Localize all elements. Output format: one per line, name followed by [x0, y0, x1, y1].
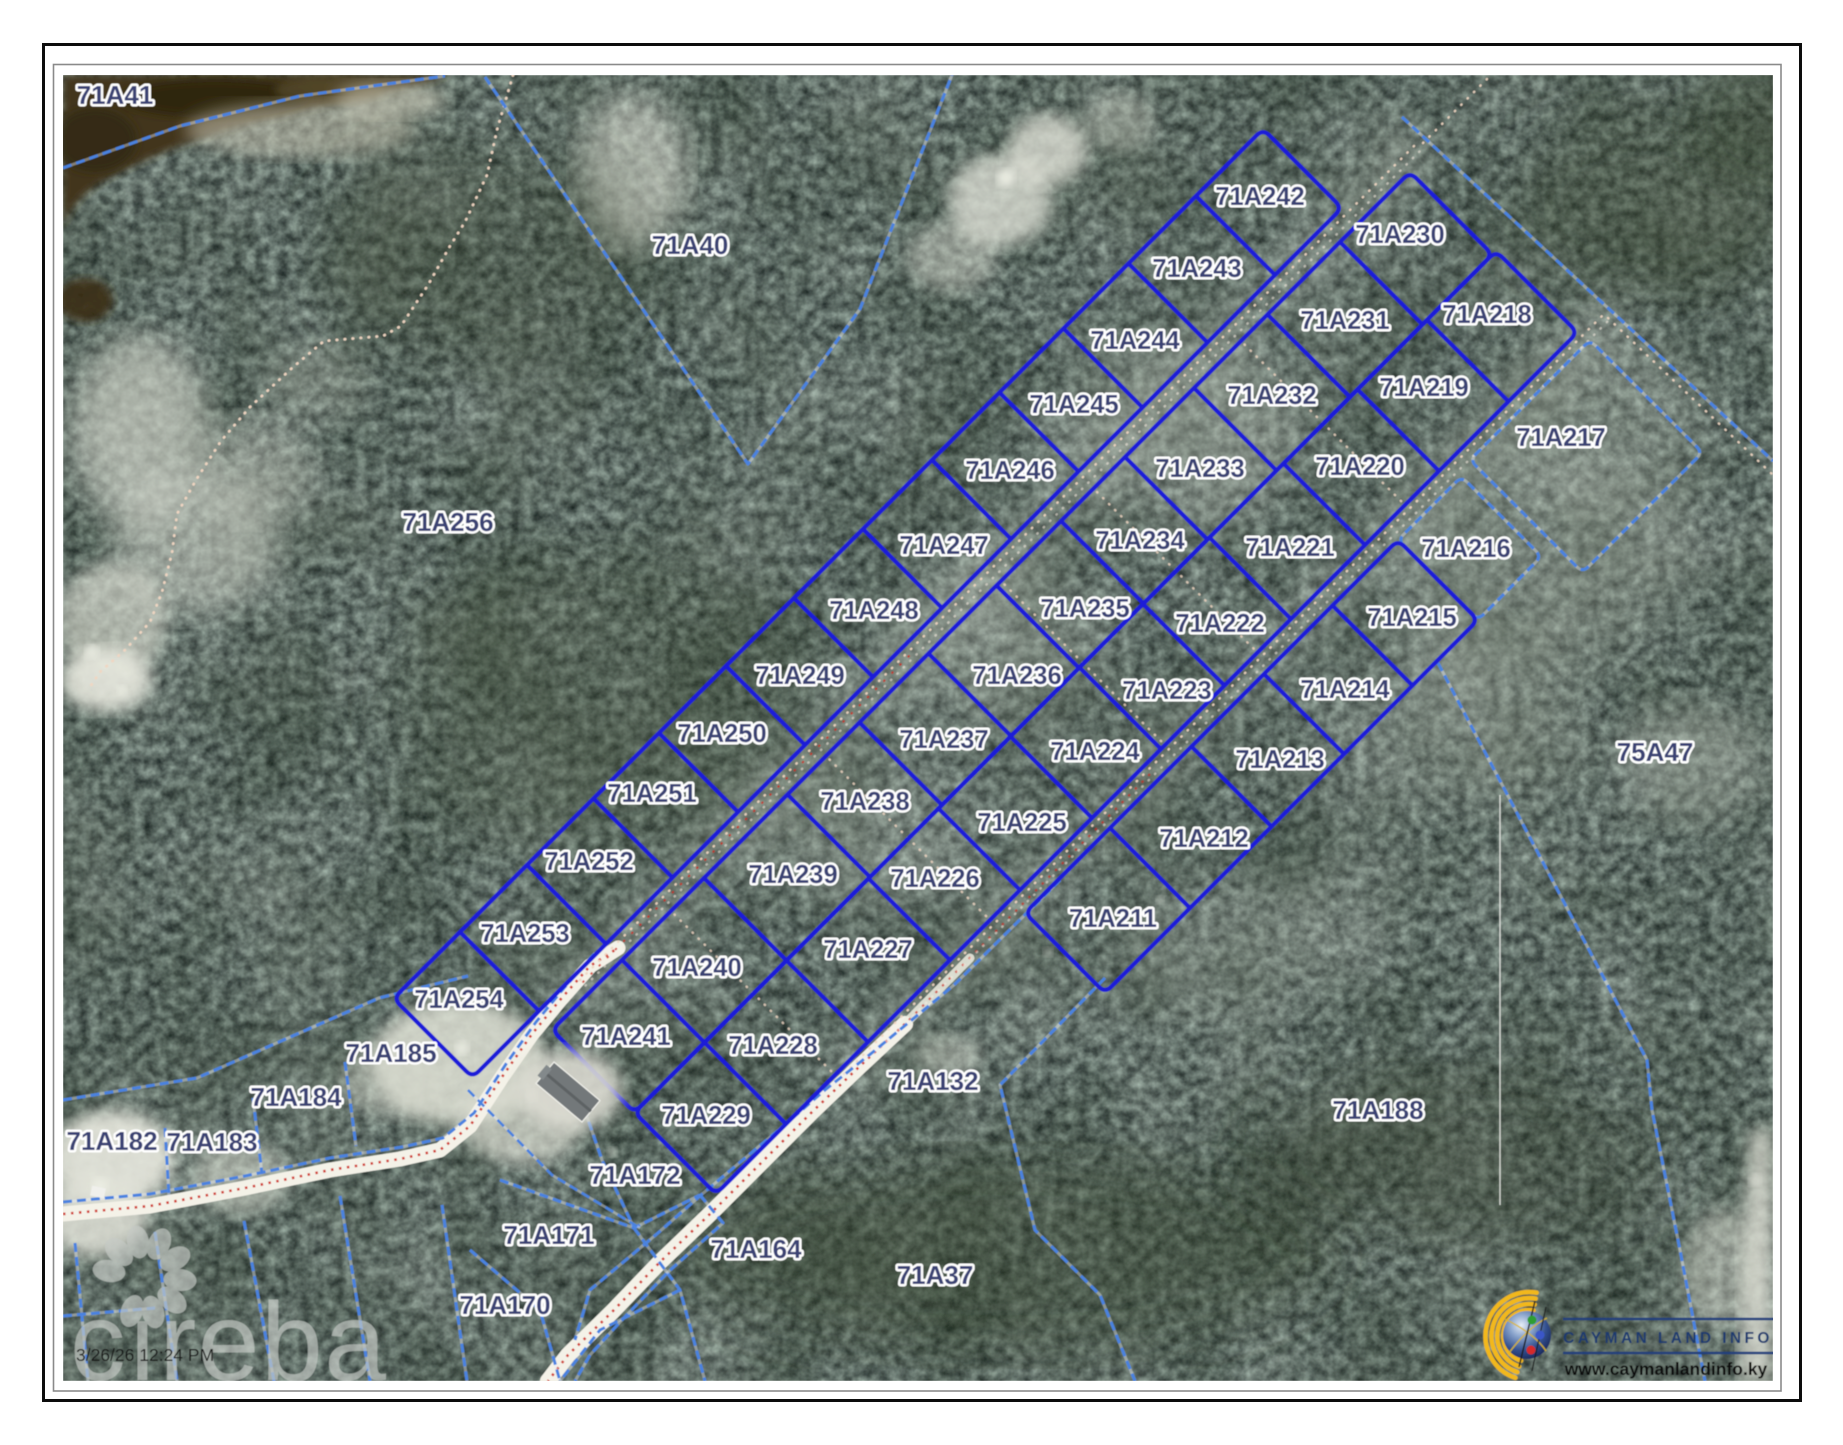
- svg-text:71A229: 71A229: [661, 1102, 750, 1130]
- svg-text:71A216: 71A216: [1421, 535, 1510, 563]
- svg-text:71A236: 71A236: [972, 662, 1061, 690]
- svg-text:71A214: 71A214: [1300, 676, 1390, 704]
- svg-text:71A231: 71A231: [1300, 307, 1389, 335]
- svg-text:71A184: 71A184: [250, 1082, 342, 1112]
- svg-text:71A232: 71A232: [1227, 382, 1316, 410]
- svg-text:71A246: 71A246: [965, 457, 1054, 485]
- svg-text:3/26/26 12:24 PM: 3/26/26 12:24 PM: [76, 1345, 214, 1365]
- svg-text:71A171: 71A171: [503, 1220, 594, 1250]
- svg-text:71A213: 71A213: [1235, 746, 1324, 774]
- svg-text:71A243: 71A243: [1152, 255, 1241, 283]
- svg-text:71A226: 71A226: [890, 865, 979, 893]
- svg-text:71A222: 71A222: [1175, 610, 1264, 638]
- svg-text:71A172: 71A172: [589, 1160, 680, 1190]
- svg-text:71A230: 71A230: [1355, 221, 1444, 249]
- svg-text:71A252: 71A252: [544, 848, 633, 876]
- svg-text:71A182: 71A182: [66, 1126, 157, 1156]
- svg-text:71A239: 71A239: [748, 861, 837, 889]
- svg-text:71A220: 71A220: [1315, 453, 1404, 481]
- svg-text:71A237: 71A237: [899, 726, 988, 754]
- svg-text:71A41: 71A41: [77, 80, 154, 110]
- svg-text:71A240: 71A240: [652, 954, 741, 982]
- svg-text:71A225: 71A225: [977, 809, 1066, 837]
- svg-text:71A256: 71A256: [402, 507, 493, 537]
- svg-text:71A170: 71A170: [459, 1290, 550, 1320]
- svg-text:71A37: 71A37: [897, 1260, 974, 1290]
- svg-text:71A254: 71A254: [414, 986, 504, 1014]
- svg-text:71A228: 71A228: [728, 1032, 817, 1060]
- svg-text:71A241: 71A241: [581, 1023, 670, 1051]
- svg-text:71A219: 71A219: [1379, 374, 1468, 402]
- svg-text:www.caymanlandinfo.ky: www.caymanlandinfo.ky: [1564, 1359, 1768, 1379]
- svg-text:71A251: 71A251: [607, 780, 696, 808]
- svg-text:71A132: 71A132: [887, 1066, 978, 1096]
- svg-text:71A211: 71A211: [1069, 905, 1157, 933]
- svg-text:71A40: 71A40: [652, 230, 729, 260]
- svg-text:71A221: 71A221: [1245, 534, 1334, 562]
- svg-text:71A215: 71A215: [1367, 604, 1456, 632]
- svg-text:75A47: 75A47: [1617, 737, 1694, 767]
- svg-text:71A185: 71A185: [345, 1038, 436, 1068]
- svg-text:71A234: 71A234: [1095, 527, 1185, 555]
- svg-text:71A217: 71A217: [1516, 424, 1605, 452]
- svg-text:71A238: 71A238: [820, 788, 909, 816]
- svg-text:71A249: 71A249: [755, 662, 844, 690]
- svg-text:71A245: 71A245: [1029, 391, 1118, 419]
- svg-text:71A233: 71A233: [1155, 455, 1244, 483]
- svg-text:71A253: 71A253: [480, 920, 569, 948]
- svg-text:71A164: 71A164: [710, 1234, 802, 1264]
- svg-text:71A244: 71A244: [1090, 327, 1180, 355]
- svg-text:71A250: 71A250: [677, 720, 766, 748]
- svg-text:71A183: 71A183: [166, 1127, 257, 1157]
- svg-text:71A242: 71A242: [1215, 183, 1304, 211]
- svg-text:71A218: 71A218: [1442, 301, 1531, 329]
- svg-text:71A235: 71A235: [1040, 595, 1129, 623]
- svg-text:71A227: 71A227: [823, 936, 912, 964]
- svg-text:71A223: 71A223: [1122, 677, 1211, 705]
- svg-text:71A224: 71A224: [1050, 738, 1140, 766]
- svg-text:71A188: 71A188: [1332, 1095, 1423, 1125]
- svg-text:71A212: 71A212: [1159, 825, 1248, 853]
- svg-text:CAYMAN LAND INFO: CAYMAN LAND INFO: [1563, 1330, 1773, 1347]
- svg-text:71A248: 71A248: [829, 597, 918, 625]
- svg-text:71A247: 71A247: [899, 532, 988, 560]
